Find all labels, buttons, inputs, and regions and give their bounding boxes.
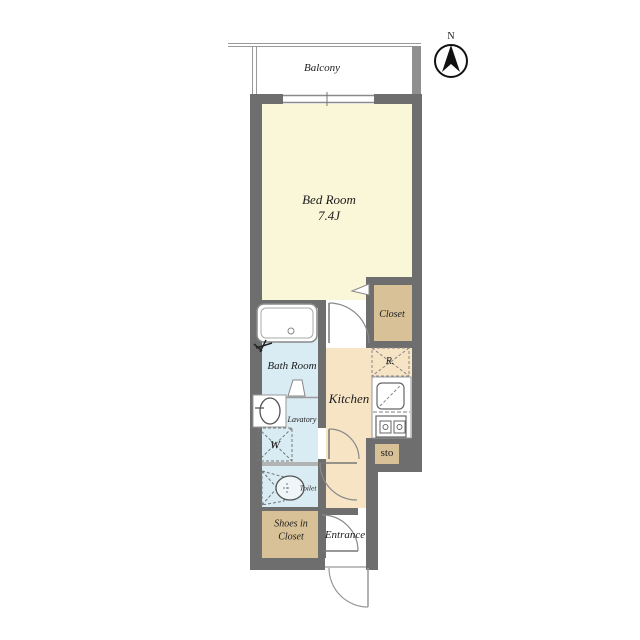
lavatory-sink-icon (253, 395, 286, 427)
kitchen-counter (372, 377, 411, 438)
entrance-main-door-arc (329, 568, 368, 607)
entrance-label: Entrance (325, 529, 365, 543)
lavatory-door-opening (318, 428, 326, 459)
wall-bottom-left (250, 558, 325, 570)
lavatory-label: Lavatory (288, 415, 317, 425)
bathroom-label: Bath Room (267, 360, 316, 374)
floor-plan-drawing (0, 0, 640, 640)
bedroom-label: Bed Room 7.4J (302, 192, 356, 225)
balcony-right-wall (412, 46, 421, 94)
balcony-label: Balcony (304, 62, 340, 76)
wall-top-left (250, 94, 283, 104)
wall-toilet-shoes (250, 507, 326, 511)
shoes-closet-line1: Shoes in (256, 519, 326, 532)
shoes-closet-line2: Closet (256, 531, 326, 544)
wall-right-lower (366, 472, 378, 570)
stove-icon (376, 416, 406, 437)
wall-right-upper (412, 94, 422, 440)
bedroom-door-arc (329, 303, 369, 343)
bedroom-size: 7.4J (302, 208, 356, 224)
floor-plan: Balcony Bed Room 7.4J Closet Bath Room K… (0, 0, 640, 640)
wall-closet-top (366, 277, 422, 285)
storage-label: sto (381, 447, 394, 461)
closet-label: Closet (379, 309, 405, 322)
bathtub-icon (257, 304, 317, 342)
wall-closet-bottom (366, 341, 422, 348)
bedroom-name: Bed Room (302, 192, 356, 208)
washer-label: W (270, 438, 280, 453)
toilet-label: Toilet (300, 483, 317, 492)
north-compass-icon (435, 45, 467, 77)
divider-lavatory-toilet (262, 462, 318, 466)
shoes-closet-label: Shoes in Closet (256, 519, 326, 544)
north-label: N (447, 31, 454, 44)
refrigerator-label: R. (386, 356, 395, 369)
window (283, 92, 374, 106)
kitchen-label: Kitchen (329, 391, 369, 407)
